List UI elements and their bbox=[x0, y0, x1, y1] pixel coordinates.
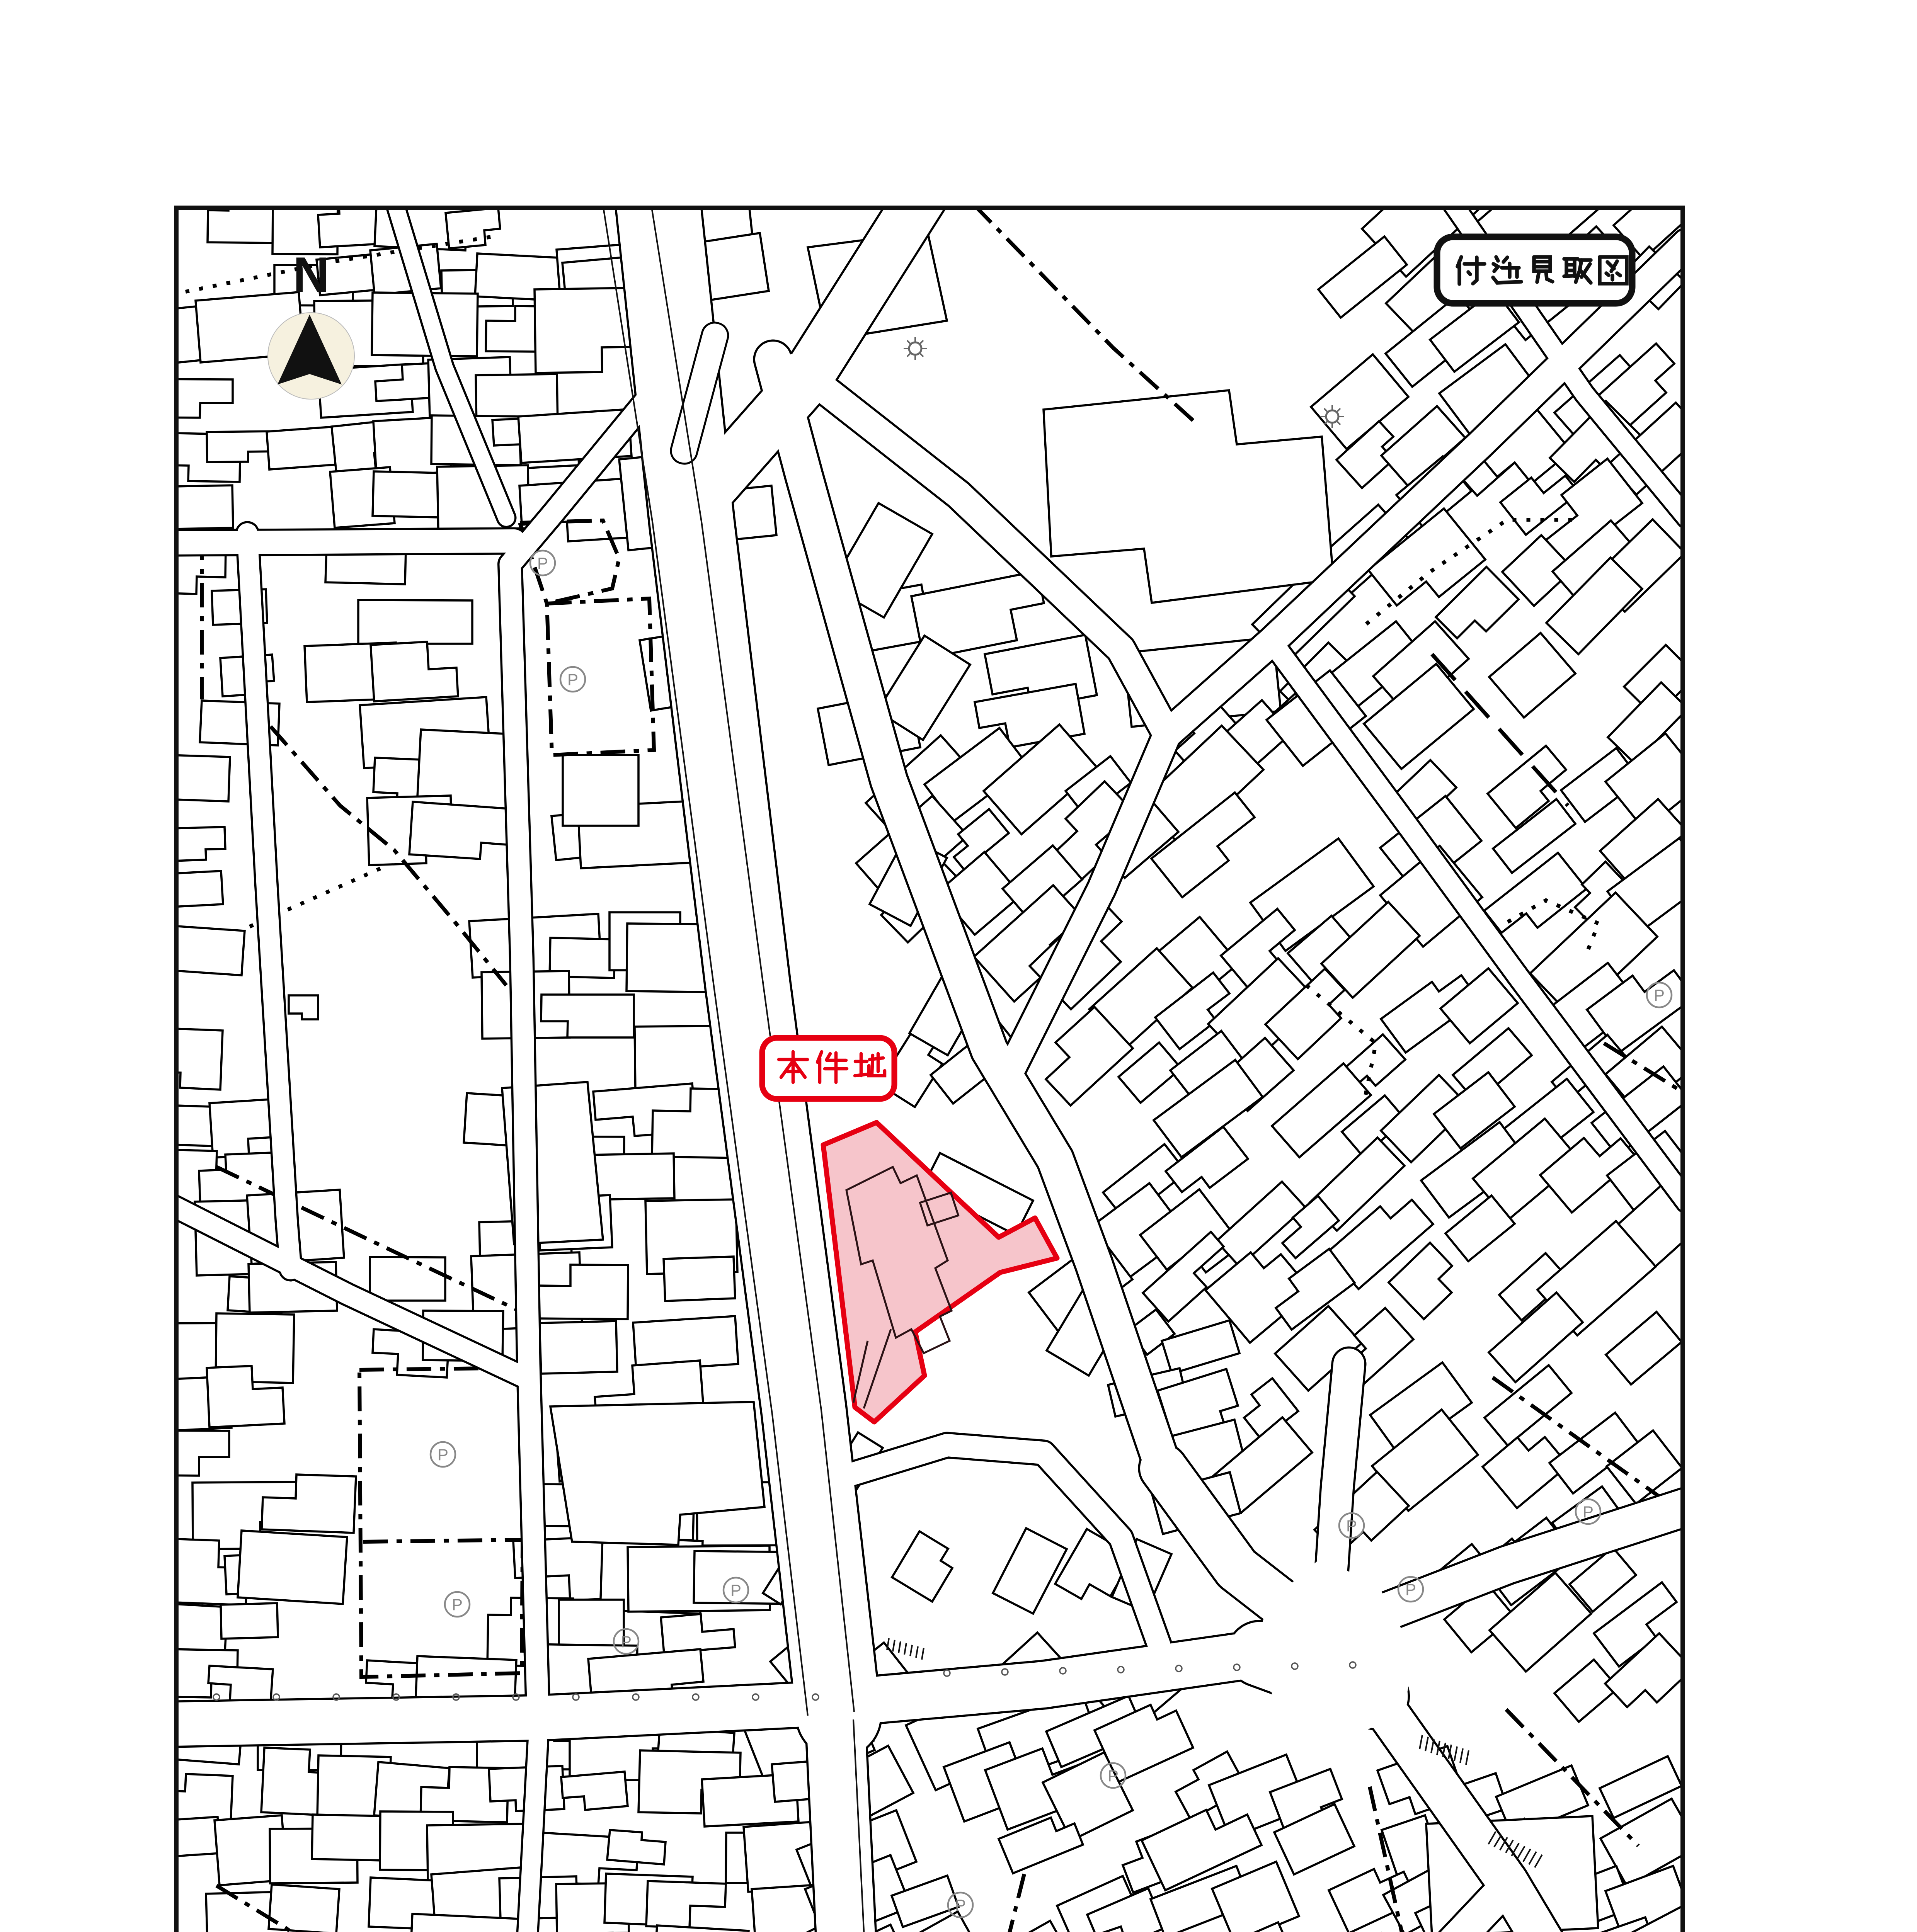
svg-text:P: P bbox=[1346, 1517, 1357, 1535]
svg-text:P: P bbox=[1108, 1767, 1119, 1785]
svg-text:P: P bbox=[621, 1633, 632, 1651]
svg-text:P: P bbox=[730, 1581, 741, 1599]
svg-text:P: P bbox=[537, 554, 548, 572]
svg-text:P: P bbox=[567, 670, 578, 689]
svg-text:P: P bbox=[438, 1446, 448, 1464]
svg-text:P: P bbox=[1405, 1580, 1416, 1599]
svg-text:P: P bbox=[955, 1896, 966, 1914]
svg-text:N: N bbox=[293, 247, 329, 303]
svg-text:P: P bbox=[452, 1595, 463, 1614]
svg-text:P: P bbox=[1654, 986, 1665, 1004]
svg-text:P: P bbox=[1583, 1503, 1594, 1521]
